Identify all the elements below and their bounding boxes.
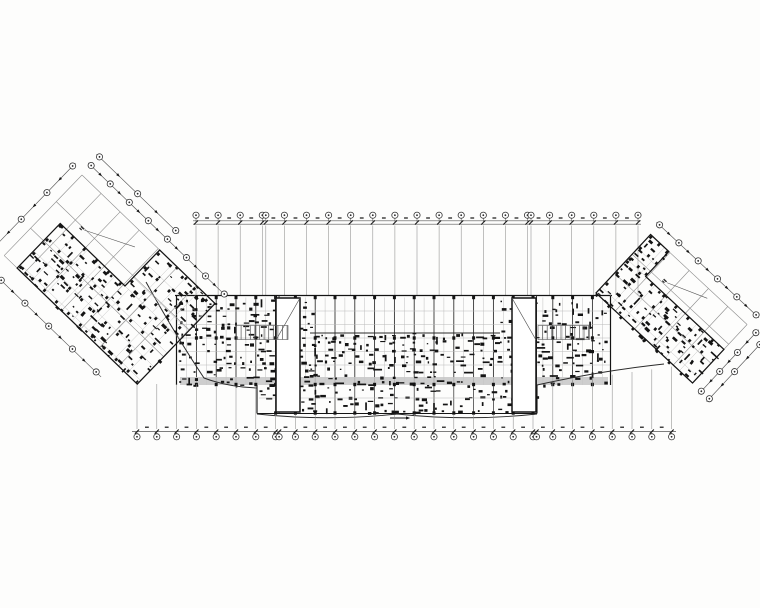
wing-dimension-rail: [704, 340, 760, 404]
leader-arrow: [390, 416, 410, 419]
top-dimension-line: [193, 212, 641, 225]
wing-dimension-rail: [94, 152, 180, 236]
wing-fine-grid: [596, 234, 747, 383]
beam-annotation-clutter: [179, 299, 608, 415]
curved-facade-line: [146, 282, 257, 388]
bottom-dimension-line: [132, 427, 676, 440]
left-wing-plan: [0, 143, 238, 403]
wing-leader-note: [662, 268, 707, 312]
curved-balcony-edge: [257, 414, 537, 418]
wing-dimension-rail: [655, 220, 760, 320]
central-framing-band: [146, 282, 664, 420]
wing-dimension-rail: [0, 161, 78, 252]
structural-floor-plan-drawing: [0, 0, 760, 608]
wing-outline: [596, 234, 747, 383]
cad-sheet: [0, 0, 760, 608]
wing-dimension-rail: [0, 273, 103, 379]
